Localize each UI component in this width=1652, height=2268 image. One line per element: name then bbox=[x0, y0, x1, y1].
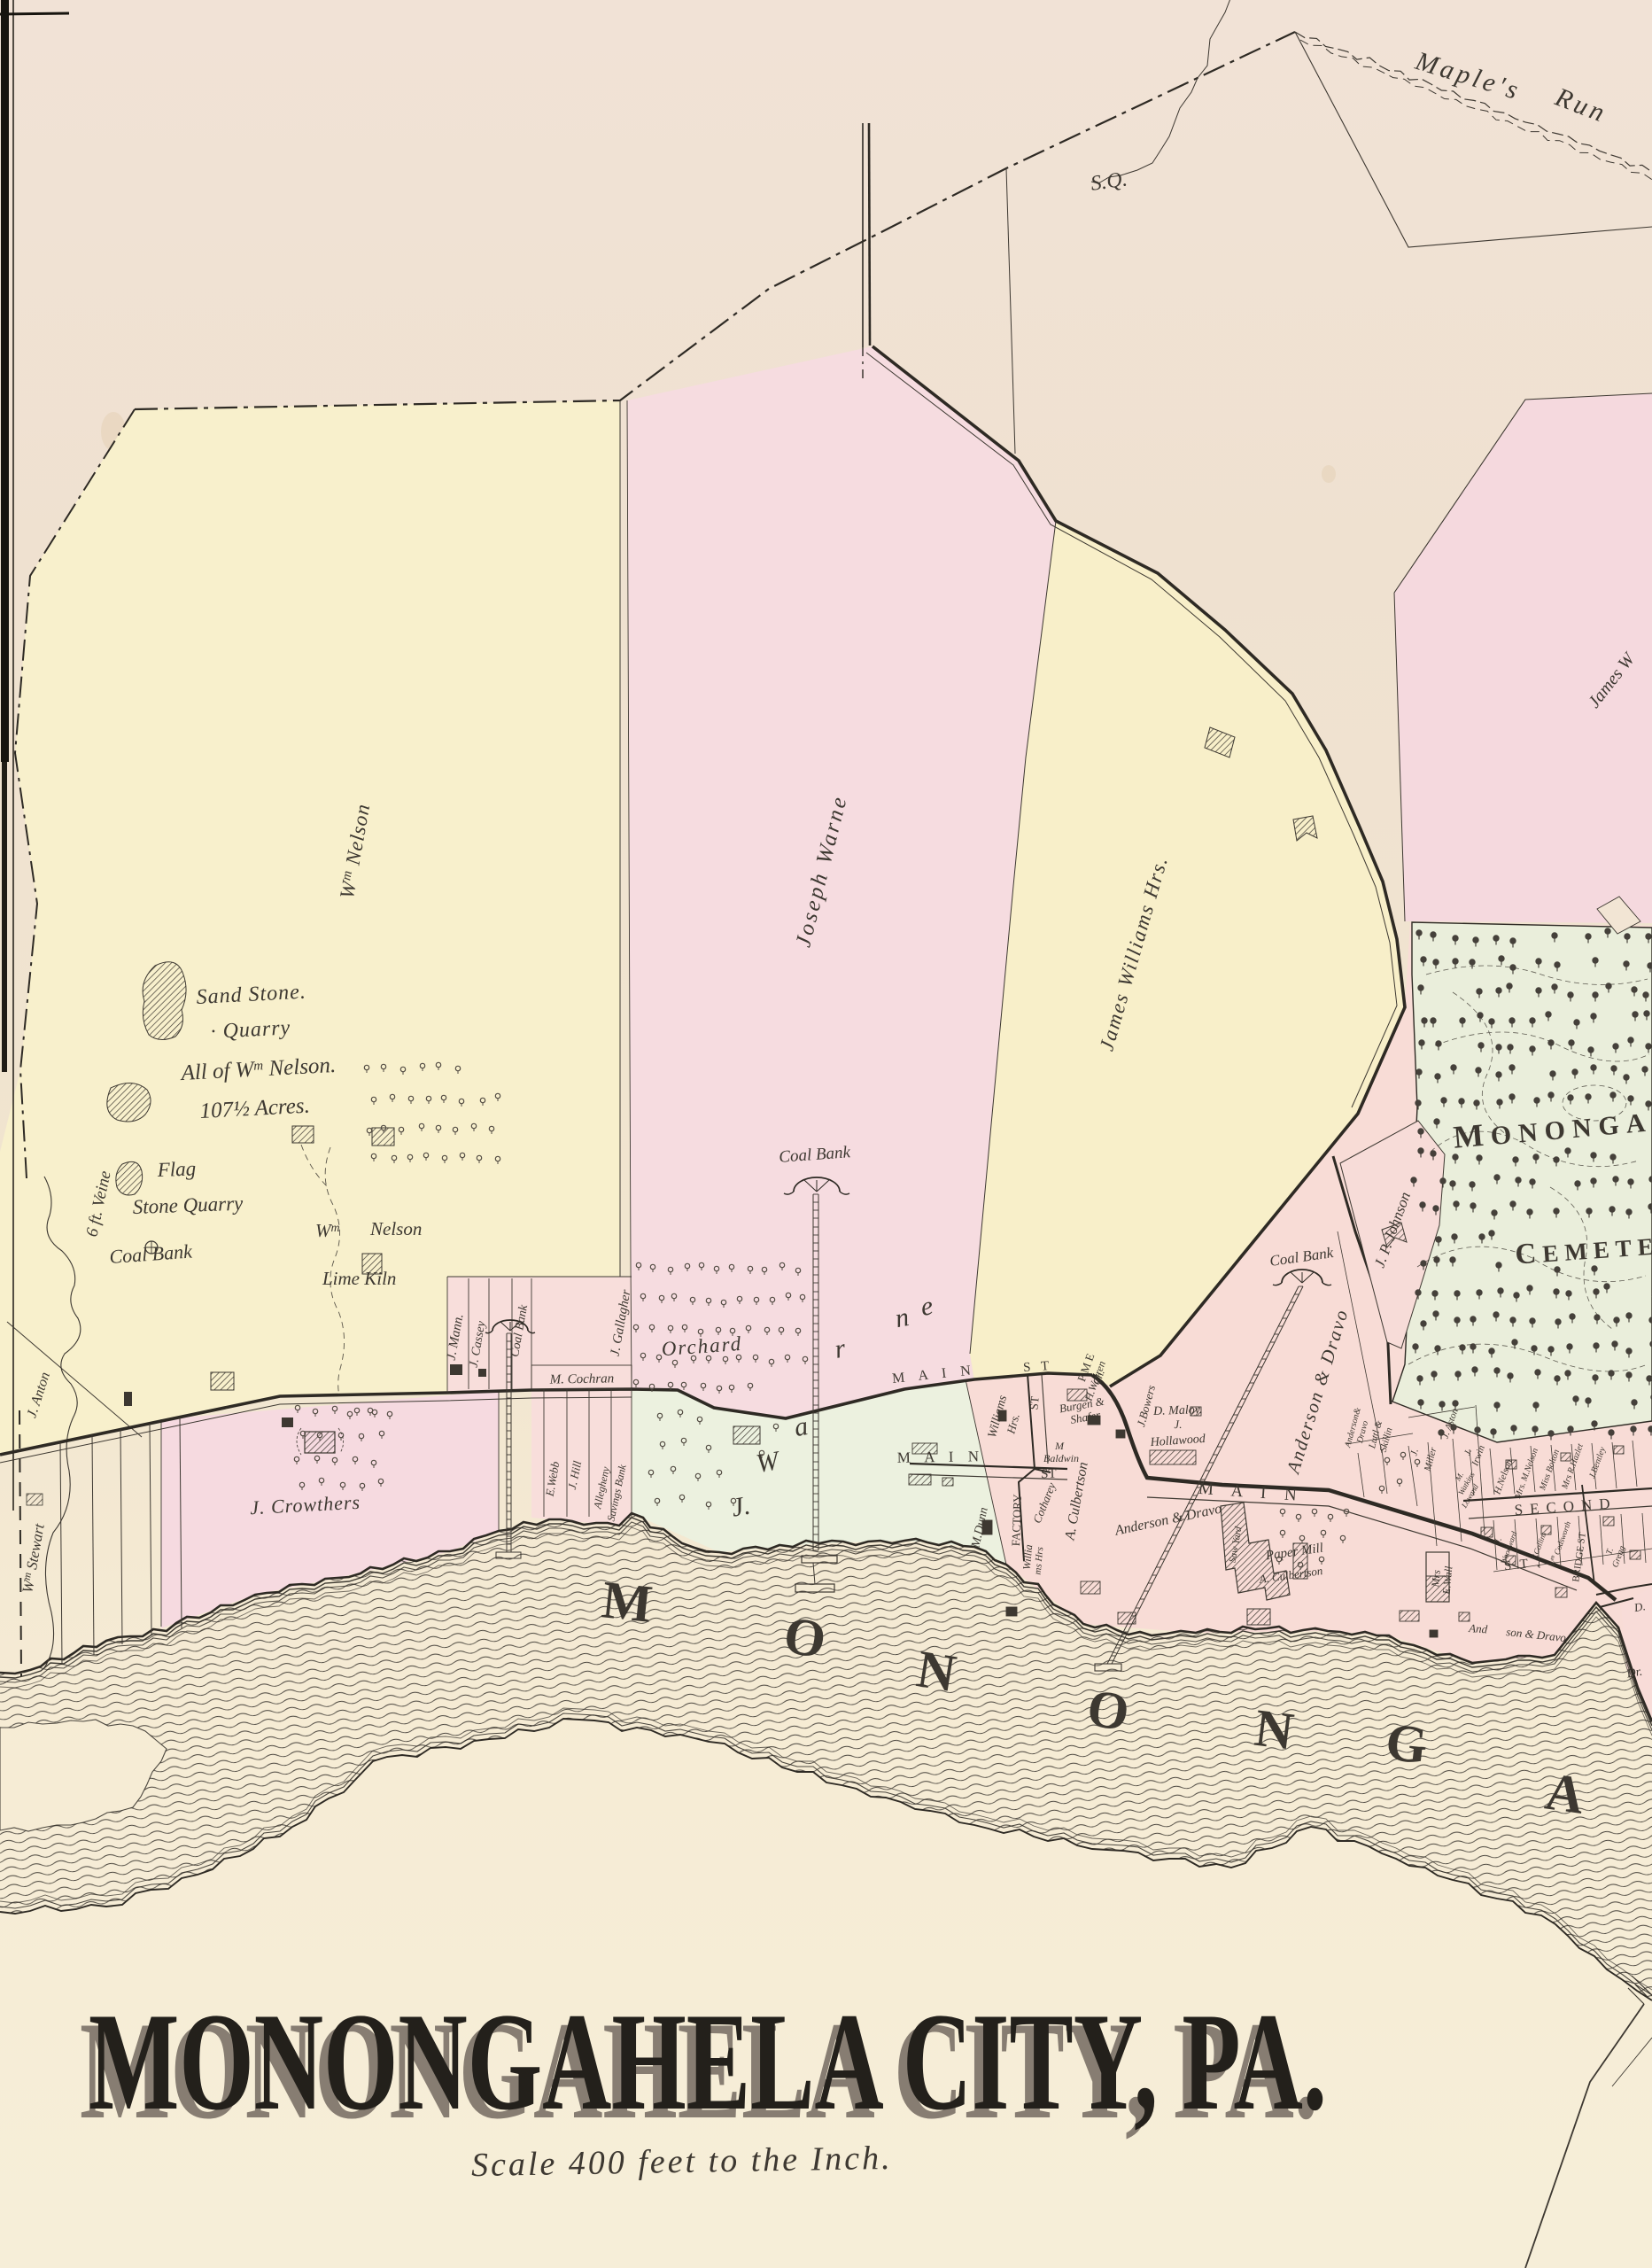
svg-text:Stone Quarry: Stone Quarry bbox=[132, 1192, 244, 1218]
svg-text:Scale 400 feet to the Inch.: Scale 400 feet to the Inch. bbox=[471, 2140, 893, 2184]
svg-text:N: N bbox=[1252, 1698, 1297, 1761]
svg-text:Lime Kiln: Lime Kiln bbox=[322, 1268, 396, 1289]
svg-text:D.: D. bbox=[1633, 1599, 1647, 1614]
svg-text:M A I N: M A I N bbox=[897, 1448, 985, 1466]
svg-text:A: A bbox=[1542, 1761, 1588, 1824]
svg-text:· Quarry: · Quarry bbox=[210, 1016, 291, 1044]
svg-text:J.: J. bbox=[1174, 1417, 1183, 1431]
svg-text:G: G bbox=[1383, 1713, 1430, 1775]
svg-text:M: M bbox=[599, 1570, 655, 1634]
svg-text:And: And bbox=[1468, 1621, 1488, 1636]
svg-text:O: O bbox=[780, 1605, 829, 1669]
svg-text:ST: ST bbox=[1027, 1395, 1041, 1410]
svg-text:Nelson: Nelson bbox=[369, 1218, 422, 1239]
svg-text:MONONGAHELA CITY, PA.: MONONGAHELA CITY, PA. bbox=[89, 1984, 1327, 2140]
svg-text:M. Cochran: M. Cochran bbox=[549, 1371, 615, 1386]
svg-text:M: M bbox=[1054, 1440, 1065, 1452]
svg-text:Baldwin: Baldwin bbox=[1043, 1452, 1079, 1464]
svg-text:D. Maloy.: D. Maloy. bbox=[1152, 1403, 1203, 1418]
svg-text:ST: ST bbox=[1041, 1467, 1057, 1482]
svg-text:S T: S T bbox=[1023, 1359, 1053, 1375]
svg-text:E.Wall: E.Wall bbox=[1440, 1565, 1455, 1596]
svg-text:Flag: Flag bbox=[156, 1157, 196, 1181]
svg-text:Dr.: Dr. bbox=[1625, 1666, 1643, 1682]
svg-text:FACTORY: FACTORY bbox=[1009, 1494, 1024, 1547]
